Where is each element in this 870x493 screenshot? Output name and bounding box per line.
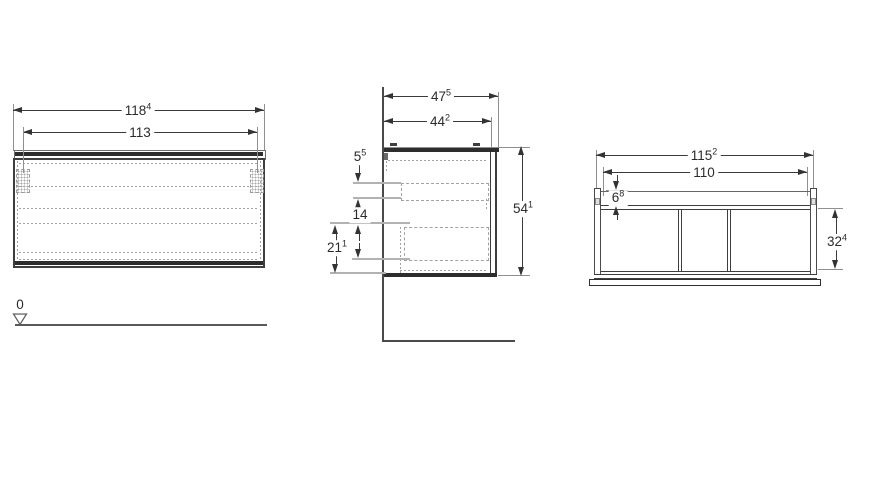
extension-line — [257, 127, 258, 173]
dim-label-width-inner: 110 — [690, 165, 718, 181]
dim-sup: 5 — [361, 148, 366, 158]
arrowhead-down-icon — [832, 260, 838, 269]
dim-label-fixing-width: 113 — [126, 125, 154, 141]
dim-label-depth: 324 — [824, 234, 850, 250]
dim-label-top-drawer-gap: 55 — [351, 149, 370, 165]
back-panel — [601, 205, 810, 210]
arrowhead-down-icon — [613, 181, 619, 190]
dim-value: 118 — [125, 103, 147, 118]
dimension-line — [617, 215, 618, 220]
dim-value: 110 — [693, 165, 715, 180]
dim-label-side-offset: 68 — [609, 190, 628, 206]
dim-value: 54 — [513, 201, 528, 216]
front-panel — [589, 279, 821, 286]
dim-value: 6 — [612, 190, 620, 205]
dim-sup: 1 — [528, 200, 533, 210]
dim-label-depth-overall: 475 — [428, 89, 454, 105]
interior-bottom-line — [601, 271, 810, 272]
dim-label-overall-width: 1184 — [122, 103, 155, 119]
drawing-canvas: 1184 113 0 475 — [0, 0, 870, 493]
dim-value: 5 — [354, 149, 362, 164]
dim-sup: 8 — [619, 189, 624, 199]
dim-sup: 4 — [146, 102, 151, 112]
arrowhead-left-icon — [603, 169, 612, 175]
dim-label-lower-drawer: 211 — [324, 240, 350, 256]
dim-value: 115 — [691, 148, 713, 163]
dim-value: 113 — [129, 125, 151, 140]
dim-label-width-overall: 1152 — [688, 148, 721, 164]
dim-value: 14 — [352, 207, 367, 222]
dim-label-height: 541 — [510, 201, 536, 217]
dim-sup: 2 — [445, 113, 450, 123]
bracket-mark-left — [595, 198, 600, 205]
dim-label-depth-body: 442 — [427, 114, 453, 130]
divider-right — [727, 210, 731, 271]
plan-view: 1152 110 68 324 — [0, 0, 870, 493]
arrowhead-right-icon — [798, 169, 807, 175]
dim-value: 32 — [827, 234, 842, 249]
arrowhead-up-icon — [613, 206, 619, 215]
arrowhead-up-icon — [832, 209, 838, 218]
extension-line — [818, 208, 843, 209]
dimension-line — [836, 218, 837, 234]
extension-line — [23, 127, 24, 173]
datum-zero-label: 0 — [15, 297, 25, 313]
back-edge-line — [594, 191, 817, 192]
dim-value: 21 — [327, 240, 342, 255]
dim-label-inner-drawer: 14 — [349, 207, 370, 223]
extension-line — [818, 269, 843, 270]
dim-sup: 4 — [842, 233, 847, 243]
arrowhead-left-icon — [596, 152, 605, 158]
arrowhead-right-icon — [804, 152, 813, 158]
divider-left — [678, 210, 682, 271]
dim-value: 44 — [430, 114, 445, 129]
dim-sup: 2 — [712, 147, 717, 157]
dim-sup: 1 — [342, 239, 347, 249]
dim-sup: 5 — [446, 88, 451, 98]
bracket-mark-right — [811, 198, 816, 205]
dim-value: 47 — [431, 89, 446, 104]
